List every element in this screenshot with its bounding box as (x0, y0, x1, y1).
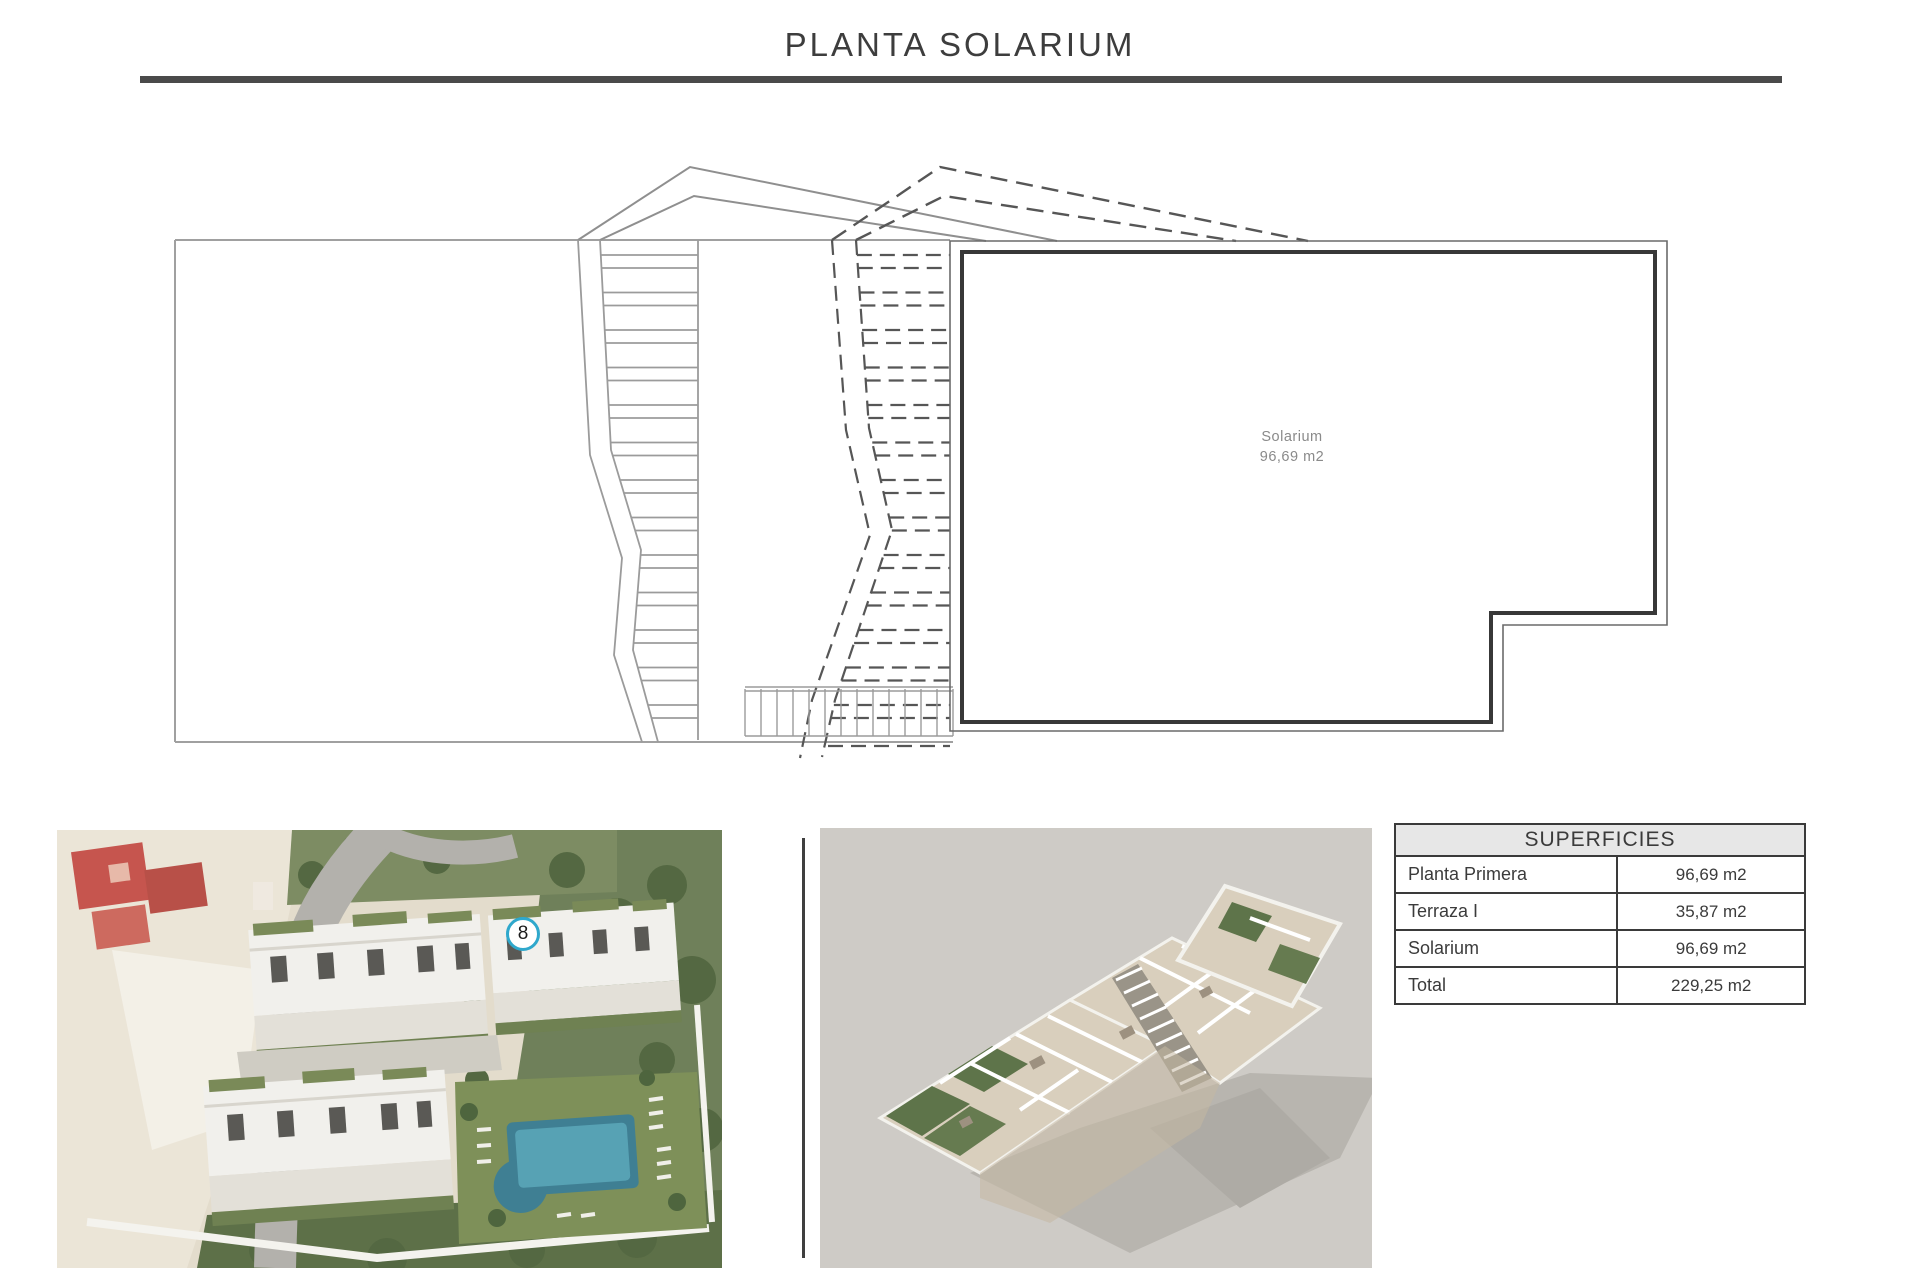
row-label: Terraza I (1395, 893, 1617, 930)
stairs-hatch (745, 687, 953, 736)
aerial-photo: 8 (57, 830, 722, 1268)
superficies-table: SUPERFICIES Planta Primera 96,69 m2 Terr… (1394, 823, 1806, 1005)
terrace-band-dashed (800, 240, 950, 758)
table-header: SUPERFICIES (1395, 824, 1805, 856)
room-name-label: Solarium (1261, 429, 1322, 445)
table-row: Planta Primera 96,69 m2 (1395, 856, 1805, 893)
table-row: Terraza I 35,87 m2 (1395, 893, 1805, 930)
title-rule (140, 76, 1782, 83)
row-value: 229,25 m2 (1617, 967, 1805, 1004)
solarium-outer-outline (950, 241, 1667, 731)
unit-marker-number: 8 (518, 923, 529, 945)
row-label: Total (1395, 967, 1617, 1004)
row-value: 96,69 m2 (1617, 930, 1805, 967)
table-row: Total 229,25 m2 (1395, 967, 1805, 1004)
room-area-label: 96,69 m2 (1260, 449, 1324, 465)
table-row: Solarium 96,69 m2 (1395, 930, 1805, 967)
unit-marker: 8 (506, 917, 540, 951)
row-label: Planta Primera (1395, 856, 1617, 893)
row-value: 35,87 m2 (1617, 893, 1805, 930)
solarium-floor-plan: Solarium 96,69 m2 (0, 90, 1920, 790)
solarium-bold-wall (962, 252, 1655, 722)
terrace-band-solid (578, 240, 698, 742)
3d-floorplan-render (820, 828, 1372, 1268)
image-divider (802, 838, 805, 1258)
row-value: 96,69 m2 (1617, 856, 1805, 893)
roof-outline-solid (578, 167, 1057, 241)
site-boundary (175, 240, 953, 742)
roof-outline-dashed (832, 167, 1308, 241)
building-block-upper-right (487, 895, 681, 1036)
page-title: PLANTA SOLARIUM (0, 26, 1920, 64)
row-label: Solarium (1395, 930, 1617, 967)
small-white-building (253, 882, 273, 910)
building-block-lower (202, 1062, 454, 1227)
